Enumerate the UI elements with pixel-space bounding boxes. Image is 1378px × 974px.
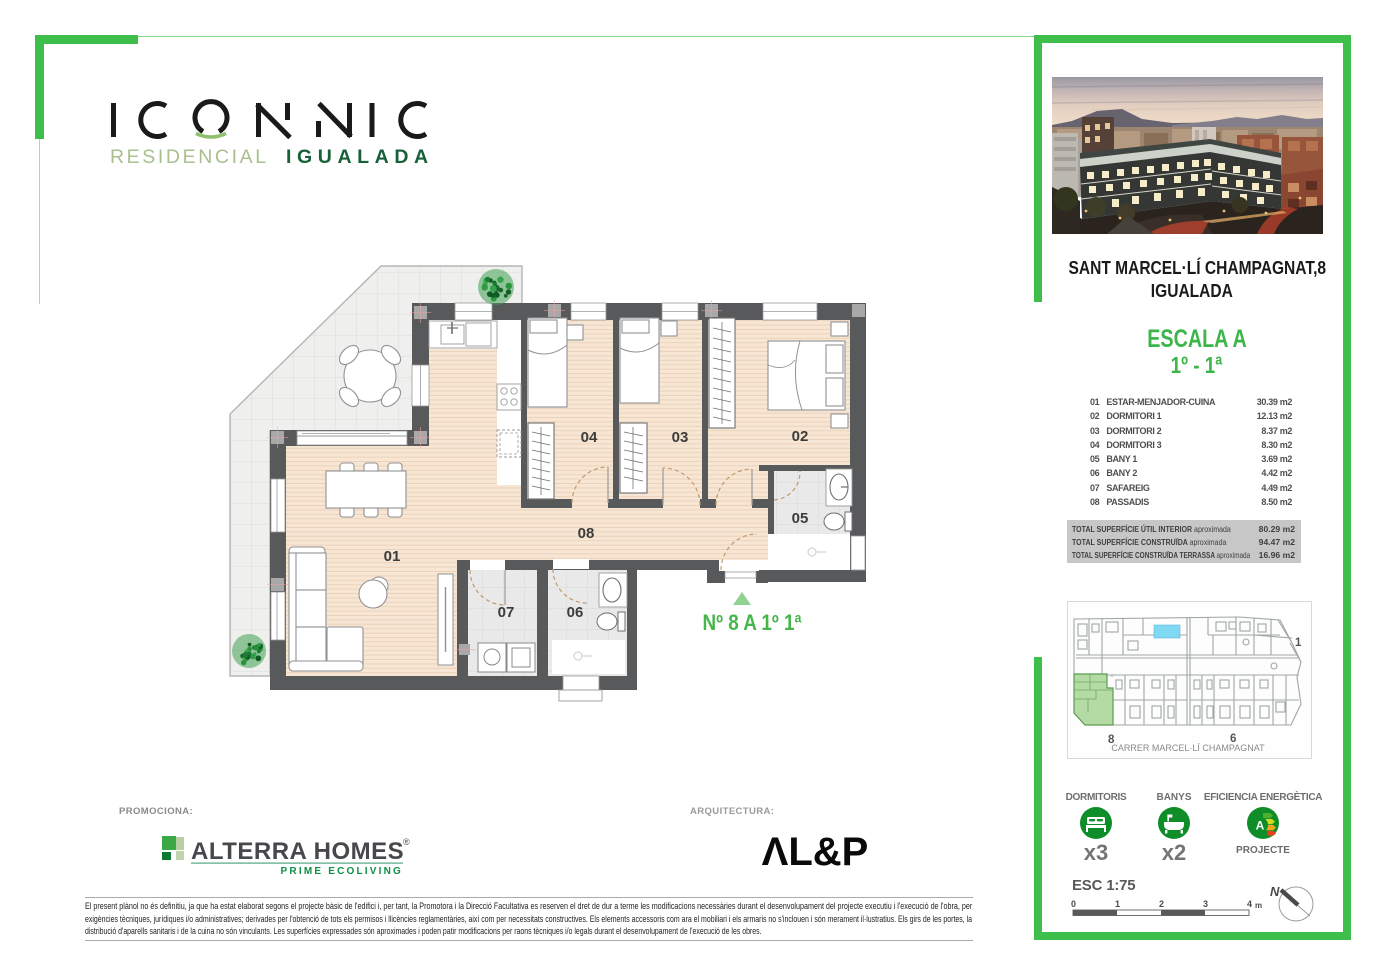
svg-text:Nº 8 A 1º 1ª: Nº 8 A 1º 1ª: [703, 610, 803, 635]
svg-text:08: 08: [578, 525, 595, 542]
svg-text:1: 1: [1295, 637, 1302, 649]
svg-text:RESIDENCIAL: RESIDENCIAL: [110, 146, 269, 168]
svg-text:4: 4: [1247, 899, 1252, 909]
svg-text:N: N: [1270, 884, 1280, 899]
svg-text:CARRER MARCEL·LÍ CHAMPAGNAT: CARRER MARCEL·LÍ CHAMPAGNAT: [1111, 743, 1265, 753]
svg-text:04: 04: [581, 429, 598, 446]
svg-text:IGUALADA: IGUALADA: [286, 146, 434, 168]
svg-text:2: 2: [1159, 899, 1164, 909]
svg-text:m: m: [1255, 901, 1262, 910]
svg-text:05: 05: [792, 510, 809, 527]
svg-text:07: 07: [498, 604, 515, 621]
svg-text:1: 1: [1115, 899, 1120, 909]
svg-text:06: 06: [567, 604, 584, 621]
svg-text:ALTERRA HOMES: ALTERRA HOMES: [191, 838, 404, 865]
svg-text:01: 01: [384, 548, 401, 565]
svg-text:03: 03: [672, 429, 689, 446]
svg-text:02: 02: [792, 428, 809, 445]
svg-text:3: 3: [1203, 899, 1208, 909]
svg-text:0: 0: [1071, 899, 1076, 909]
svg-text:A: A: [1256, 819, 1265, 833]
svg-text:PRIME ECOLIVING: PRIME ECOLIVING: [281, 866, 403, 877]
svg-text:®: ®: [403, 837, 410, 847]
